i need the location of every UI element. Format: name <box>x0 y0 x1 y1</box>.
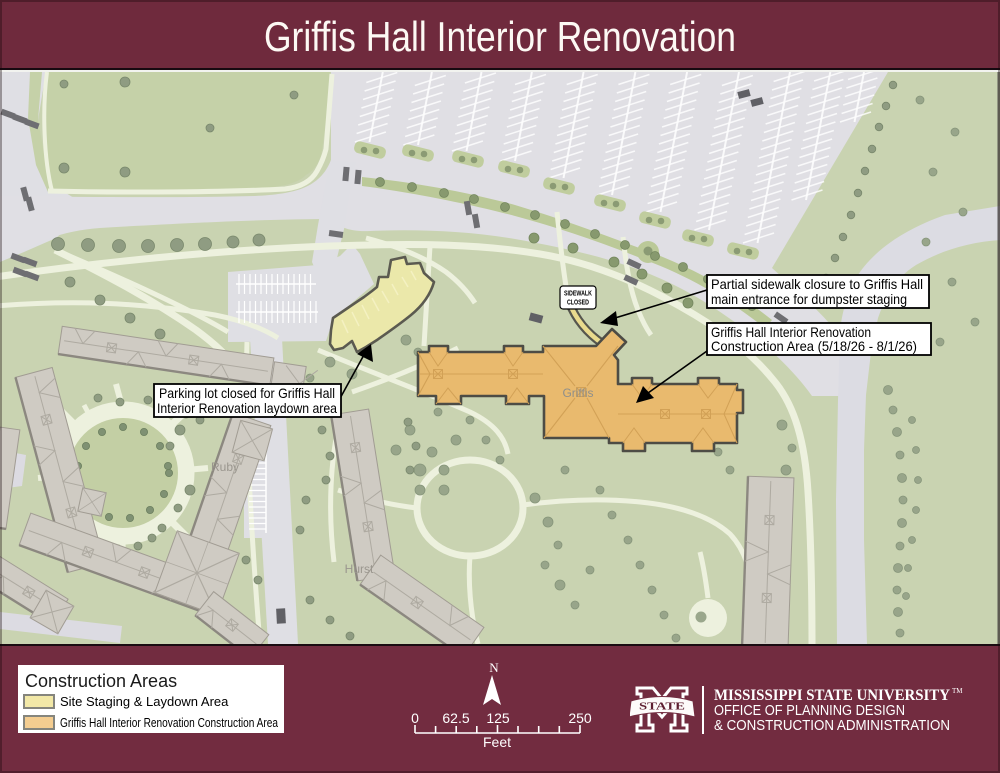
svg-text:Site Staging & Laydown Area: Site Staging & Laydown Area <box>60 694 229 709</box>
svg-text:N: N <box>489 660 499 675</box>
svg-text:OFFICE OF PLANNING DESIGN: OFFICE OF PLANNING DESIGN <box>714 703 905 719</box>
svg-text:Partial sidewalk closure to Gr: Partial sidewalk closure to Griffis Hall <box>711 276 923 292</box>
svg-text:TM: TM <box>952 687 963 695</box>
svg-text:62.5: 62.5 <box>442 710 469 726</box>
svg-text:& CONSTRUCTION ADMINISTRATION: & CONSTRUCTION ADMINISTRATION <box>714 718 950 734</box>
svg-text:Construction Areas: Construction Areas <box>25 671 177 691</box>
svg-text:Interior Renovation laydown ar: Interior Renovation laydown area <box>157 400 337 416</box>
svg-text:Hurst: Hurst <box>345 562 374 576</box>
svg-text:Parking lot closed for Griffis: Parking lot closed for Griffis Hall <box>159 385 335 401</box>
svg-text:STATE: STATE <box>639 701 685 713</box>
svg-text:Griffis Hall Interior Renovati: Griffis Hall Interior Renovation Constru… <box>60 715 279 730</box>
svg-text:main entrance for dumpster sta: main entrance for dumpster staging <box>711 291 907 307</box>
svg-text:Ruby: Ruby <box>211 460 239 474</box>
svg-text:125: 125 <box>486 710 510 726</box>
svg-text:CLOSED: CLOSED <box>567 300 589 307</box>
svg-text:Feet: Feet <box>483 734 511 750</box>
svg-text:MISSISSIPPI STATE UNIVERSITY: MISSISSIPPI STATE UNIVERSITY <box>714 687 950 704</box>
svg-text:Griffis: Griffis <box>562 386 593 400</box>
svg-text:SIDEWALK: SIDEWALK <box>564 291 592 298</box>
svg-text:Griffis Hall Interior Renovati: Griffis Hall Interior Renovation <box>264 13 736 60</box>
svg-text:Construction Area (5/18/26 - 8: Construction Area (5/18/26 - 8/1/26) <box>711 338 917 354</box>
svg-text:250: 250 <box>568 710 592 726</box>
svg-text:0: 0 <box>411 710 419 726</box>
